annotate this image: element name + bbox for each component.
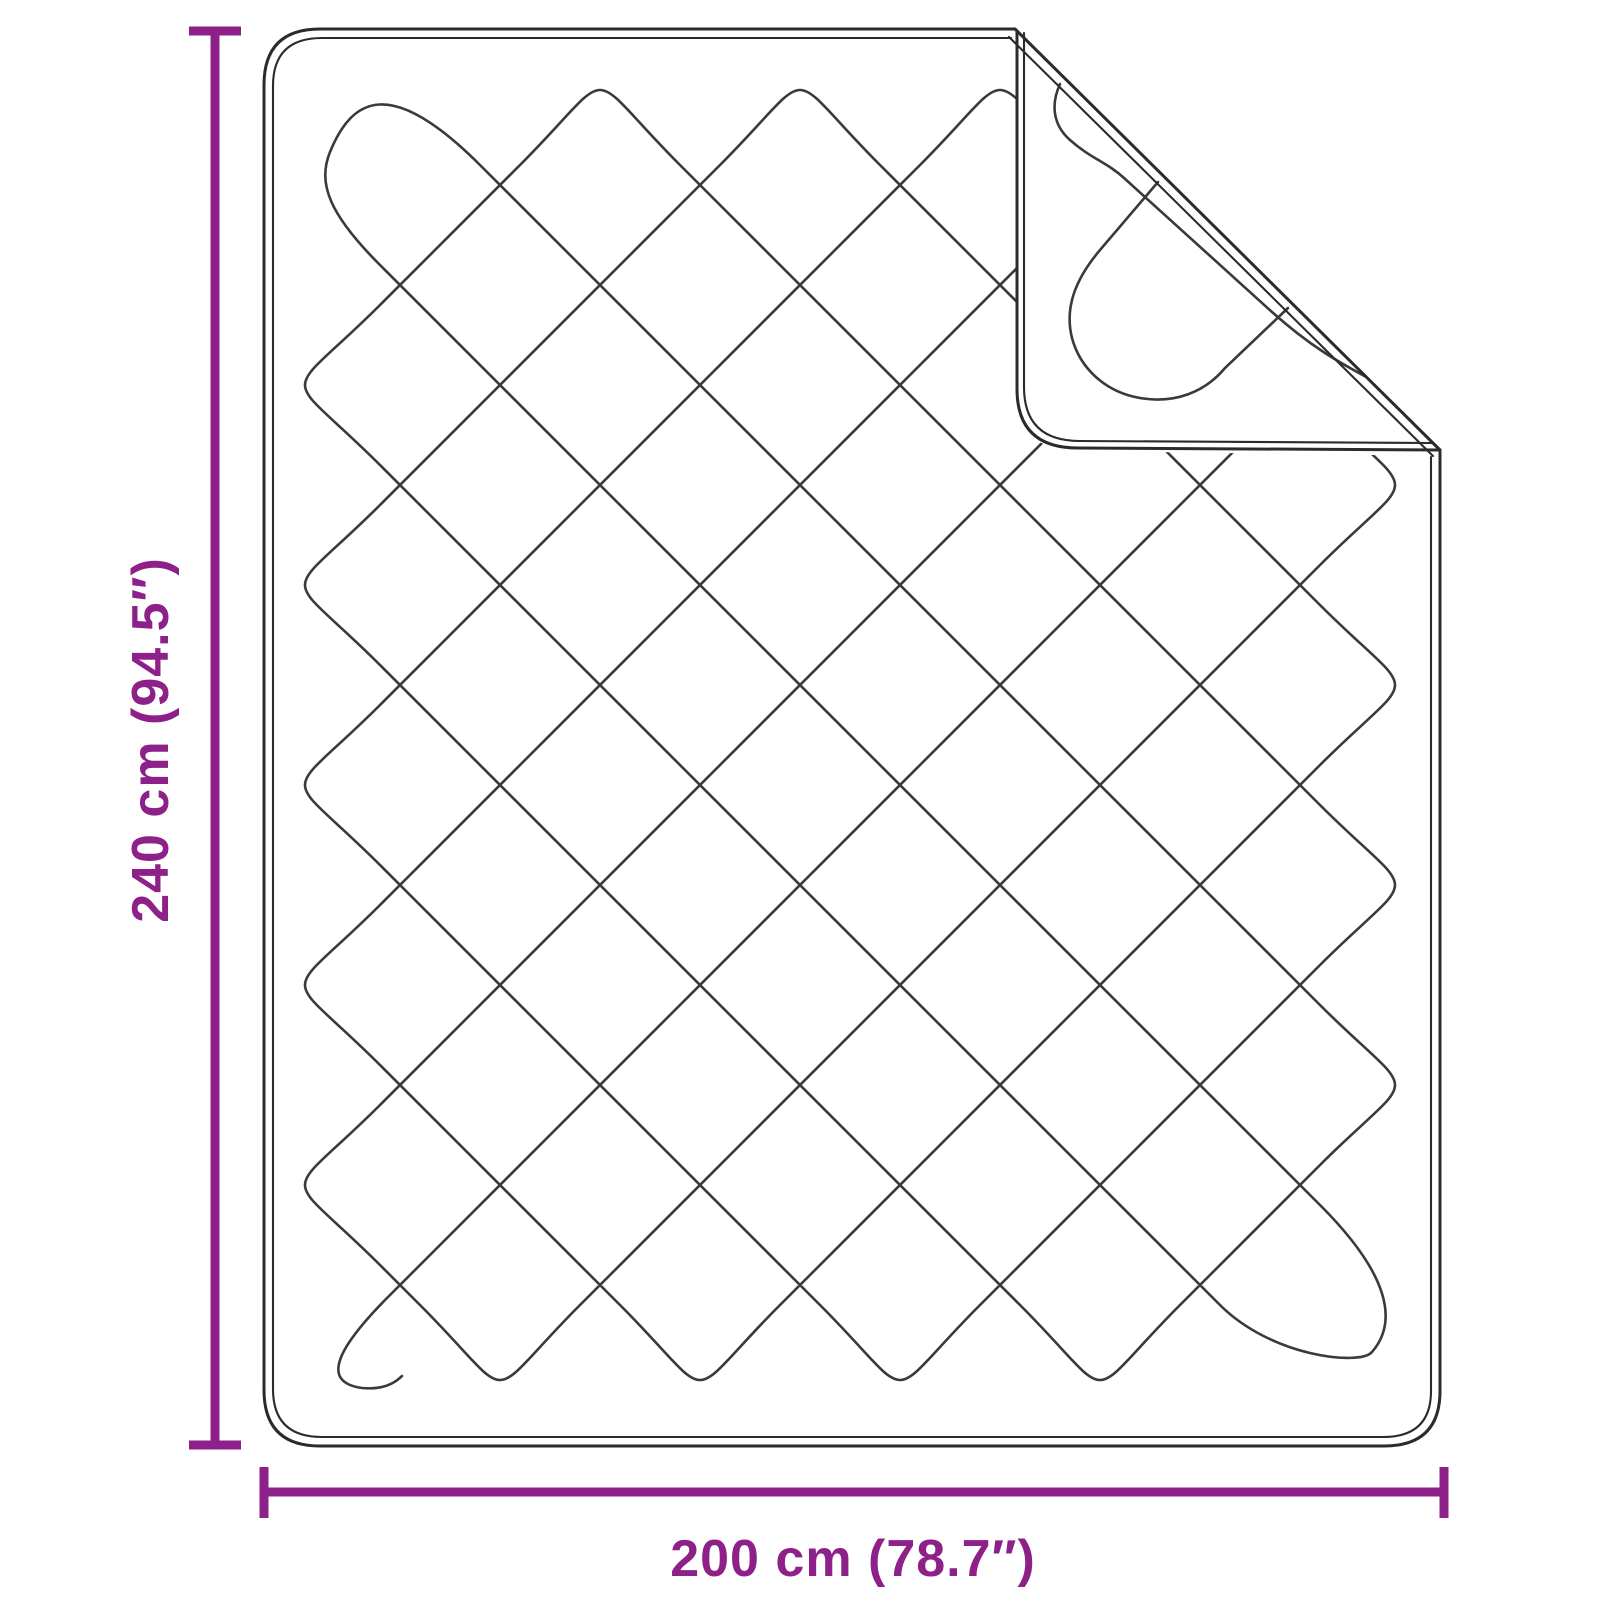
height-dimension-label: 240 cm (94.5″) <box>122 557 180 923</box>
width-dimension-label: 200 cm (78.7″) <box>670 1530 1036 1588</box>
blanket-dimension-diagram: 240 cm (94.5″) 200 cm (78.7″) <box>0 0 1600 1600</box>
diagram-canvas: 240 cm (94.5″) 200 cm (78.7″) <box>0 0 1600 1600</box>
